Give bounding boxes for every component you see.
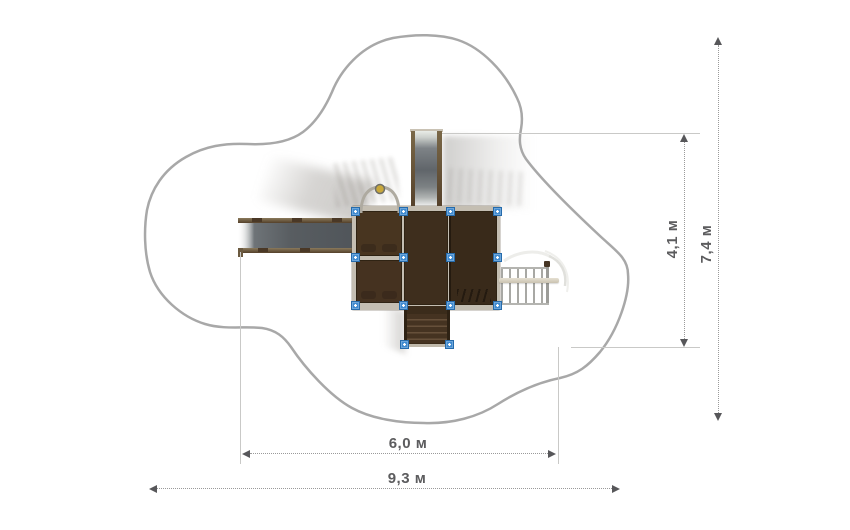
main-platform — [352, 206, 500, 310]
dimension-label-safety-zone-width: 9,3 м — [357, 470, 457, 487]
post-marker — [493, 301, 502, 310]
flat-ladder-rungs — [457, 289, 491, 302]
side-slide — [238, 218, 356, 253]
slide-rail-bottom — [238, 248, 356, 253]
seat-shape — [361, 244, 376, 252]
post-marker — [399, 253, 408, 262]
post-marker — [446, 253, 455, 262]
post-marker — [493, 253, 502, 262]
dimension-label-safety-zone-height: 7,4 м — [698, 214, 714, 274]
dimension-line-equipment-height — [684, 141, 685, 341]
ladder-bars — [501, 267, 549, 305]
post-marker — [399, 207, 408, 216]
rail-tab — [332, 218, 342, 222]
platform-panel-middle — [404, 211, 448, 305]
ladder-knob — [544, 261, 550, 267]
post-marker — [400, 340, 409, 349]
ladder-handrail — [499, 278, 559, 283]
extension-line-left — [240, 252, 241, 464]
arch-ball-icon — [376, 185, 385, 194]
post-marker — [445, 340, 454, 349]
post-marker — [351, 253, 360, 262]
post-marker — [493, 207, 502, 216]
spiral-rail-shadow-arc — [504, 252, 551, 261]
dimension-label-equipment-width: 6,0 м — [358, 435, 458, 452]
slide-rail-left — [411, 131, 415, 209]
slide-rail-right — [437, 131, 442, 209]
rail-tab — [292, 218, 302, 222]
top-slide — [411, 131, 442, 209]
dimension-line-safety-zone-width — [157, 488, 612, 489]
arrow-left-icon — [242, 450, 250, 458]
arrow-right-icon — [612, 485, 620, 493]
dimension-label-equipment-height: 4,1 м — [664, 209, 680, 269]
slide-exit-flare — [238, 223, 254, 248]
plan-drawing: 4,1 м 7,4 м 6,0 м 9,3 м — [0, 0, 850, 530]
rail-tab — [300, 248, 310, 252]
entry-stairs — [404, 306, 450, 347]
platform-panel-right — [449, 211, 497, 305]
arrow-up-icon — [680, 134, 688, 142]
dimension-line-equipment-width — [250, 453, 548, 454]
extension-line-right — [558, 347, 559, 464]
post-marker — [399, 301, 408, 310]
post-marker — [446, 207, 455, 216]
arrow-left-icon — [149, 485, 157, 493]
platform-panel-lower-left — [356, 260, 402, 303]
stair-base — [404, 344, 450, 347]
slide-chute — [415, 131, 437, 209]
rail-tab — [258, 248, 268, 252]
seat-shape — [361, 291, 376, 299]
extension-line-top — [442, 133, 700, 134]
arrow-down-icon — [680, 339, 688, 347]
extension-line-mid — [571, 347, 700, 348]
slide-chute — [238, 223, 356, 248]
post-marker — [351, 207, 360, 216]
post-marker — [446, 301, 455, 310]
ladder-end-post — [546, 265, 549, 303]
seat-shape — [382, 244, 397, 252]
rail-tab — [252, 218, 262, 222]
arrow-up-icon — [714, 37, 722, 45]
seat-shape — [382, 291, 397, 299]
post-marker — [351, 301, 360, 310]
arrow-right-icon — [548, 450, 556, 458]
climbing-ladder — [499, 261, 561, 303]
arrow-down-icon — [714, 413, 722, 421]
stair-treads — [407, 314, 447, 343]
dimension-line-safety-zone-height — [718, 45, 719, 413]
